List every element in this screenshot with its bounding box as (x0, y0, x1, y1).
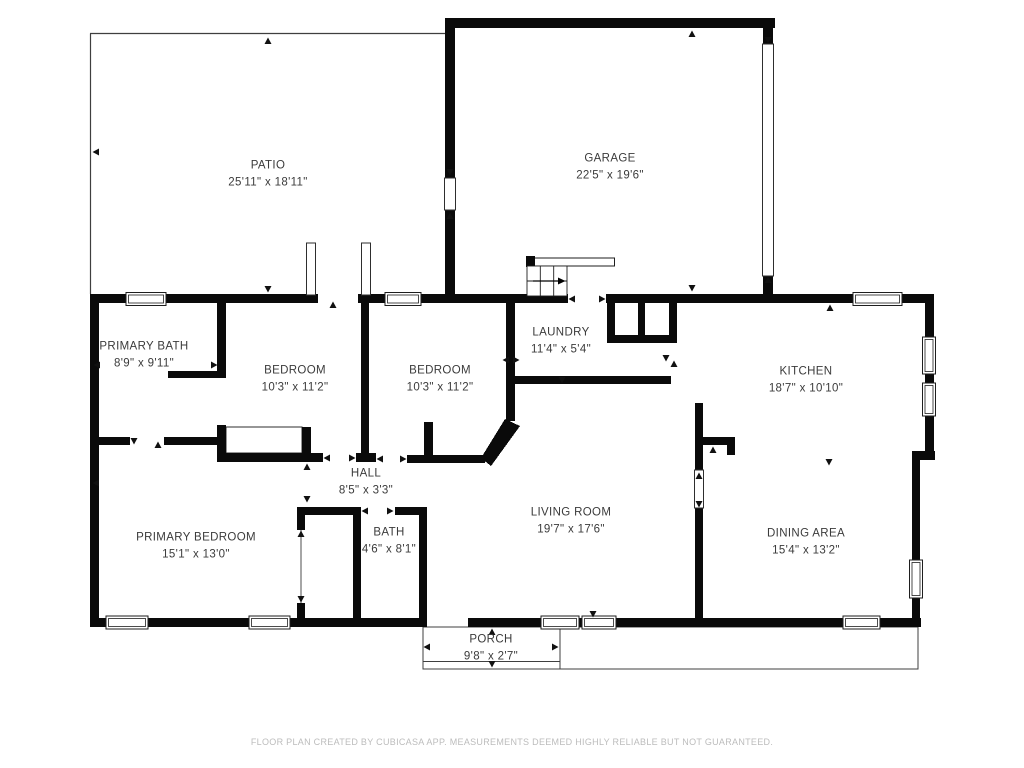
room-label-primary-bath: PRIMARY BATH 8'9" x 9'11" (99, 339, 188, 372)
footer-disclaimer: FLOOR PLAN CREATED BY CUBICASA APP. MEAS… (251, 737, 773, 747)
room-label-living-room: LIVING ROOM 19'7" x 17'6" (531, 505, 612, 538)
room-dims: 15'4" x 13'2" (767, 542, 845, 559)
room-dims: 10'3" x 11'2" (262, 379, 329, 396)
room-dims: 22'5" x 19'6" (576, 167, 644, 184)
room-name: DINING AREA (767, 526, 845, 543)
patio-outline (90, 34, 445, 604)
room-name: BEDROOM (262, 363, 329, 380)
room-label-kitchen: KITCHEN 18'7" x 10'10" (769, 364, 843, 397)
room-name: PRIMARY BEDROOM (136, 530, 256, 547)
room-name: GARAGE (576, 151, 644, 168)
room-label-hall: HALL 8'5" x 3'3" (339, 466, 393, 499)
room-label-porch: PORCH 9'8" x 2'7" (464, 632, 518, 665)
room-name: KITCHEN (769, 364, 843, 381)
room-dims: 25'11" x 18'11" (228, 174, 307, 191)
room-label-primary-bedroom: PRIMARY BEDROOM 15'1" x 13'0" (136, 530, 256, 563)
room-label-patio: PATIO 25'11" x 18'11" (228, 158, 307, 191)
room-dims: 9'8" x 2'7" (464, 648, 518, 665)
room-name: BEDROOM (407, 363, 474, 380)
room-name: PRIMARY BATH (99, 339, 188, 356)
room-name: PORCH (464, 632, 518, 649)
room-label-bedroom-2: BEDROOM 10'3" x 11'2" (407, 363, 474, 396)
floor-plan-canvas: PATIO 25'11" x 18'11" GARAGE 22'5" x 19'… (0, 0, 1024, 768)
dimension-ticks (93, 31, 834, 668)
room-dims: 8'5" x 3'3" (339, 482, 393, 499)
room-name: LIVING ROOM (531, 505, 612, 522)
stairs-icon (526, 256, 615, 296)
room-dims: 11'4" x 5'4" (531, 341, 591, 358)
room-dims: 15'1" x 13'0" (136, 546, 256, 563)
room-label-bedroom-1: BEDROOM 10'3" x 11'2" (262, 363, 329, 396)
room-dims: 4'6" x 8'1" (362, 541, 416, 558)
room-label-laundry: LAUNDRY 11'4" x 5'4" (531, 325, 591, 358)
room-name: BATH (362, 525, 416, 542)
room-name: HALL (339, 466, 393, 483)
room-dims: 18'7" x 10'10" (769, 380, 843, 397)
room-dims: 8'9" x 9'11" (99, 355, 188, 372)
room-name: PATIO (228, 158, 307, 175)
room-label-bath: BATH 4'6" x 8'1" (362, 525, 416, 558)
room-label-dining-area: DINING AREA 15'4" x 13'2" (767, 526, 845, 559)
room-name: LAUNDRY (531, 325, 591, 342)
room-label-garage: GARAGE 22'5" x 19'6" (576, 151, 644, 184)
room-dims: 10'3" x 11'2" (407, 379, 474, 396)
room-dims: 19'7" x 17'6" (531, 521, 612, 538)
